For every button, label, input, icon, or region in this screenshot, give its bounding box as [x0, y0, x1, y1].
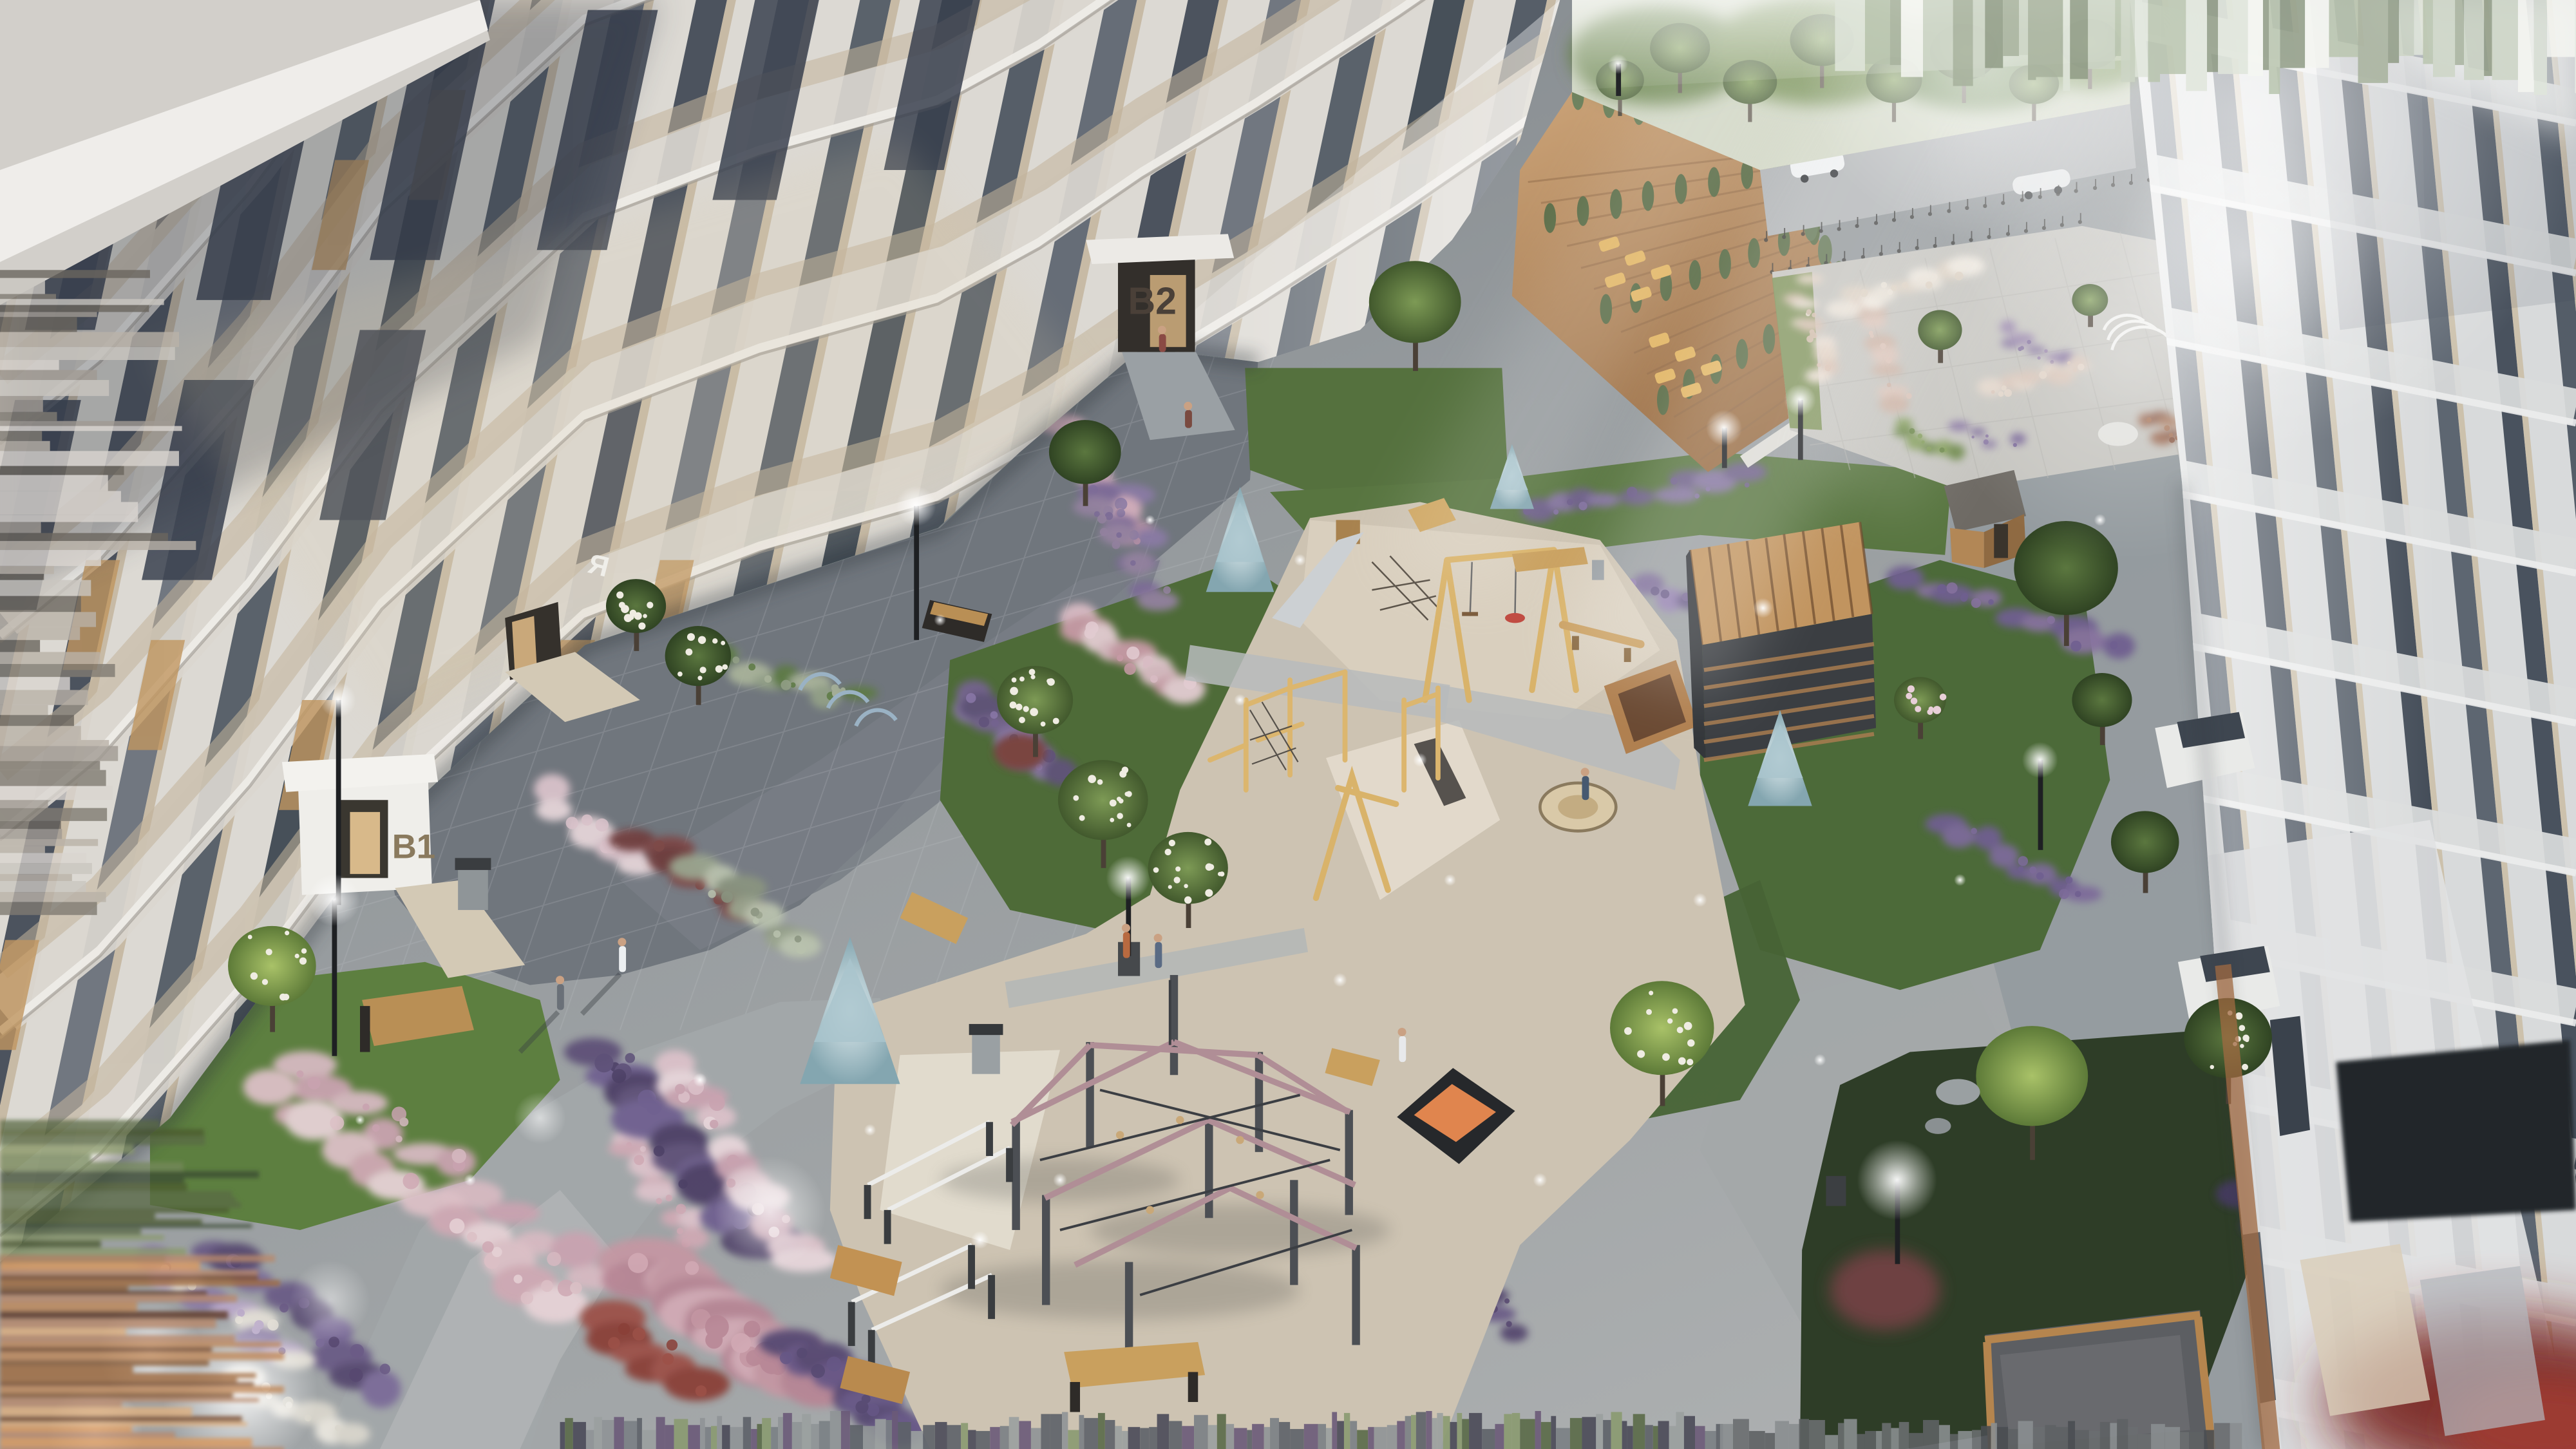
svg-text:B2: B2 — [1128, 280, 1177, 323]
svg-text:B1: B1 — [392, 828, 435, 866]
